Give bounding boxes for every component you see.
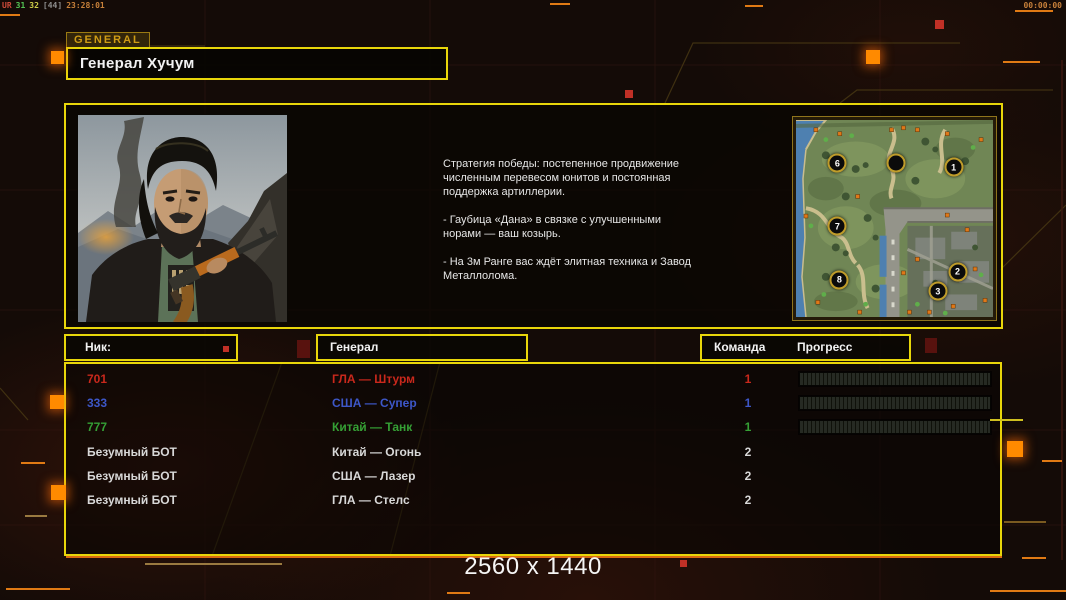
column-header-team-progress: Команда Прогресс	[700, 334, 911, 361]
start-position-marker: 3	[928, 282, 947, 301]
player-team: 1	[740, 372, 756, 386]
page-title: Генерал Хучум	[66, 47, 448, 80]
player-general: Китай — Огонь	[332, 445, 421, 459]
briefing-paragraph: - На 3м Ранге вас ждёт элитная техника и…	[443, 255, 693, 283]
general-tab: GENERAL	[66, 32, 150, 47]
player-team: 2	[740, 493, 756, 507]
decor-red-square	[680, 560, 687, 567]
progress-bar	[799, 372, 991, 386]
start-position-marker: 1	[944, 158, 963, 177]
player-team: 1	[740, 420, 756, 434]
column-header-general: Генерал	[316, 334, 528, 361]
overlay-stat: 32	[29, 1, 39, 10]
decor-red-square	[223, 346, 229, 352]
progress-bar	[799, 420, 991, 434]
decor-dash	[990, 419, 1023, 421]
decor-square	[51, 51, 64, 64]
decor-dark-square	[925, 338, 937, 353]
column-header-team: Команда	[714, 336, 765, 359]
overlay-stat: 31	[16, 1, 26, 10]
general-info-panel: Стратегия победы: постепенное продвижени…	[64, 103, 1003, 329]
player-general: США — Супер	[332, 396, 417, 410]
performance-overlay: UR3132[44]23:28:01	[2, 1, 109, 10]
decor-square	[866, 50, 880, 64]
player-table: 701 ГЛА — Штурм 1 333 США — Супер 1 777 …	[64, 362, 1002, 556]
start-position-marker: 2	[948, 262, 967, 281]
column-header-progress: Прогресс	[797, 336, 852, 359]
decor-dash	[1004, 521, 1046, 523]
decor-red-square	[625, 90, 633, 98]
player-team: 2	[740, 445, 756, 459]
start-position-marker: 7	[828, 217, 847, 236]
decor-red-square	[935, 20, 944, 29]
start-position-marker	[887, 154, 906, 173]
table-row: Безумный БОТ Китай — Огонь 2	[66, 440, 1000, 464]
general-portrait	[78, 115, 287, 322]
decor-dash	[1042, 460, 1062, 462]
decor-square	[1007, 441, 1023, 457]
decor-dash	[447, 592, 470, 594]
start-position-marker: 6	[828, 154, 847, 173]
overlay-stat: UR	[2, 1, 12, 10]
decor-dash	[1015, 10, 1053, 12]
overlay-stat: [44]	[43, 1, 62, 10]
match-timer: 00:00:00	[1023, 1, 1062, 10]
decor-dash	[1003, 61, 1040, 63]
player-team: 2	[740, 469, 756, 483]
briefing-paragraph: - Гаубица «Дана» в связке с улучшенными …	[443, 213, 693, 241]
decor-dash	[990, 590, 1066, 592]
portrait-art	[78, 115, 287, 322]
start-position-marker: 8	[830, 270, 849, 289]
column-header-nick: Ник:	[64, 334, 238, 361]
decor-dash	[25, 515, 47, 517]
player-general: ГЛА — Стелс	[332, 493, 410, 507]
table-row: Безумный БОТ ГЛА — Стелс 2	[66, 488, 1000, 512]
minimap-art	[796, 120, 993, 317]
player-general: ГЛА — Штурм	[332, 372, 415, 386]
overlay-stat: 23:28:01	[66, 1, 105, 10]
decor-dash	[0, 14, 20, 16]
player-nick: Безумный БОТ	[87, 469, 177, 483]
decor-dark-square	[297, 340, 310, 358]
decor-dash	[1022, 557, 1046, 559]
player-nick: Безумный БОТ	[87, 493, 177, 507]
decor-square	[50, 395, 64, 409]
player-general: США — Лазер	[332, 469, 415, 483]
player-nick: 777	[87, 420, 107, 434]
briefing-paragraph: Стратегия победы: постепенное продвижени…	[443, 157, 693, 199]
table-row: 777 Китай — Танк 1	[66, 415, 1000, 439]
minimap-terrain: 6 1 7 8 2 3	[796, 120, 993, 317]
decor-square	[51, 485, 66, 500]
decor-dash	[745, 5, 763, 7]
decor-dash	[6, 588, 70, 590]
player-general: Китай — Танк	[332, 420, 412, 434]
decor-dash	[145, 563, 282, 565]
table-row: 333 США — Супер 1	[66, 391, 1000, 415]
table-row: Безумный БОТ США — Лазер 2	[66, 464, 1000, 488]
progress-bar	[799, 396, 991, 410]
player-nick: Безумный БОТ	[87, 445, 177, 459]
table-row: 701 ГЛА — Штурм 1	[66, 367, 1000, 391]
resolution-label: 2560 x 1440	[0, 553, 1066, 581]
minimap: 6 1 7 8 2 3	[792, 116, 997, 321]
decor-dash	[21, 462, 45, 464]
player-nick: 701	[87, 372, 107, 386]
decor-dash	[550, 3, 570, 5]
player-team: 1	[740, 396, 756, 410]
player-nick: 333	[87, 396, 107, 410]
strategy-briefing: Стратегия победы: постепенное продвижени…	[443, 157, 693, 297]
